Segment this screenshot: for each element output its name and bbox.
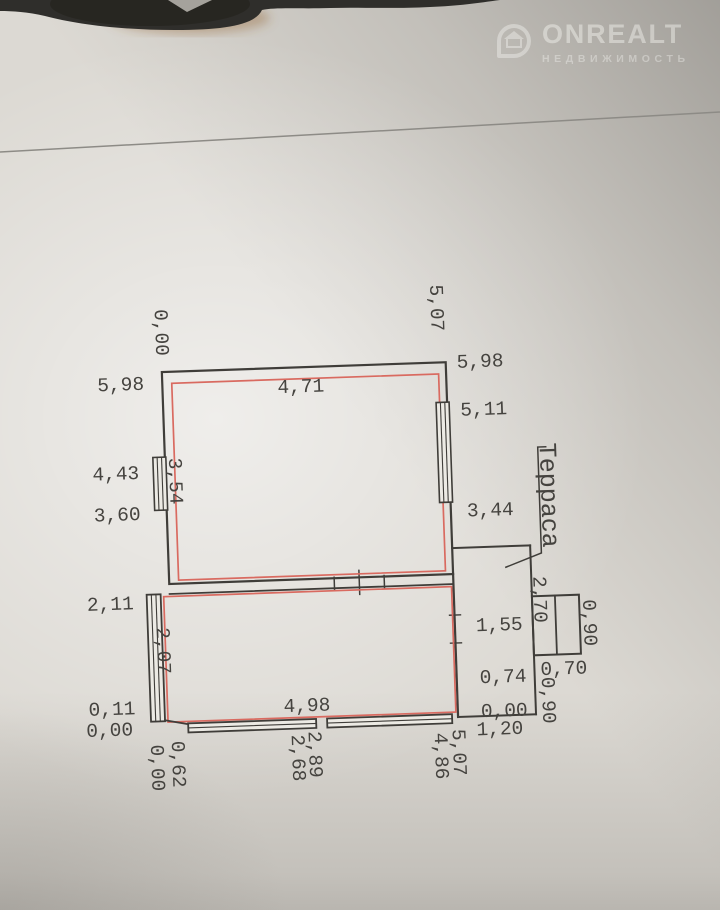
dim-bottom-left-step: 0,11: [88, 698, 136, 722]
window-right-upper: [436, 402, 452, 502]
floorplan-photo: ONREALT НЕДВИЖИМОСТЬ: [0, 0, 720, 910]
dim-porch-right-side: 0,90: [577, 599, 601, 647]
page-edge-line: [0, 112, 720, 152]
terrace-label: Терраса: [532, 442, 565, 548]
dim-top-left-elev: 0,00: [149, 309, 173, 357]
dim-lower-room-left-inner: 2,07: [151, 627, 175, 675]
dim-left-win-bottom: 3,60: [93, 504, 141, 528]
floorplan-drawing: 5,98 4,43 3,60 2,11 0,11 0,00 4,71 4,98 …: [0, 0, 720, 910]
dim-bottom-right-pair-left: 4,86: [429, 732, 453, 780]
dim-terrace-mid: 0,74: [479, 666, 527, 690]
dim-bottom-left-pair-inner: 0,62: [166, 740, 190, 788]
dim-right-wall-len: 5,98: [456, 350, 504, 374]
dim-bottom-center-pair-left: 2,68: [286, 734, 310, 782]
dim-left-win-top: 4,43: [92, 463, 140, 487]
wall-interior-lower-line: [170, 584, 454, 594]
dim-upper-room-width: 4,71: [277, 375, 325, 399]
red-outline-upper-room: [172, 374, 446, 580]
dim-lower-room-width: 4,98: [283, 694, 331, 718]
dim-right-win-bottom: 3,44: [467, 499, 515, 523]
dim-bottom-left-pair-outer: 0,00: [145, 744, 169, 792]
wall-terrace-top: [452, 545, 530, 548]
dim-terrace-top: 1,55: [476, 614, 524, 638]
dim-left-wall-len: 5,98: [97, 374, 145, 398]
dim-terrace-bottom-width: 1,20: [476, 718, 524, 742]
dim-top-right-elev: 5,07: [424, 284, 448, 332]
dim-porch-below: 0,90: [536, 676, 560, 724]
dim-bottom-left-elev: 0,00: [86, 719, 134, 743]
dim-left-mid-elev: 2,11: [87, 593, 135, 617]
porch-step-divider: [555, 596, 557, 655]
dim-upper-room-left-inner: 3,54: [163, 457, 187, 505]
dim-right-win-top: 5,11: [460, 398, 508, 422]
dim-porch-side: 2,70: [527, 576, 551, 624]
